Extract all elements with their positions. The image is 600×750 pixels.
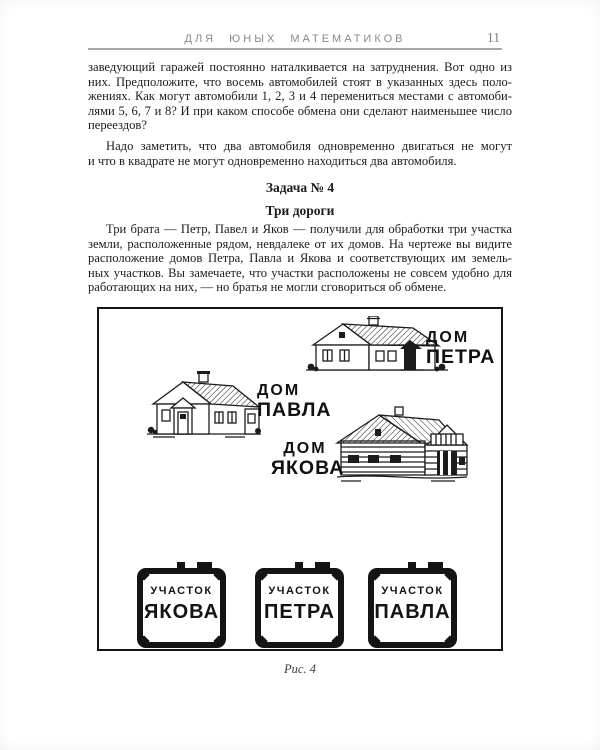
- house-petra-label-line1: ДОМ: [426, 328, 495, 347]
- house-yakova-label: ДОМ ЯКОВА: [271, 439, 339, 479]
- text-line: Надо заметить, что два автомобиля одновр…: [88, 139, 512, 154]
- house-yakova-illustration: [335, 405, 469, 483]
- running-header: ДЛЯ ЮНЫХ МАТЕМАТИКОВ 11: [88, 0, 502, 50]
- running-title: ДЛЯ ЮНЫХ МАТЕМАТИКОВ: [88, 33, 502, 45]
- plot-petra: УЧАСТОК ПЕТРА: [255, 568, 344, 648]
- plot-corner-mark: [213, 635, 224, 646]
- plot-gate-mark: [177, 562, 185, 569]
- plot-pavla: УЧАСТОК ПАВЛА: [368, 568, 457, 648]
- plot-corner-mark: [256, 569, 267, 580]
- house-pavla-label-line2: ПАВЛА: [257, 400, 331, 421]
- plot-yakova-label-line2: ЯКОВА: [143, 601, 220, 624]
- figure-caption: Рис. 4: [0, 662, 600, 677]
- problem-title: Три дороги: [88, 203, 512, 219]
- plot-corner-mark: [213, 569, 224, 580]
- plot-corner-mark: [138, 569, 149, 580]
- house-yakova-label-line2: ЯКОВА: [271, 458, 339, 479]
- plot-gate-mark: [197, 562, 212, 569]
- house-petra-label-line2: ПЕТРА: [426, 347, 495, 368]
- house-pavla-label-line1: ДОМ: [257, 381, 331, 400]
- plot-pavla-label-line1: УЧАСТОК: [374, 585, 451, 597]
- plot-corner-mark: [331, 635, 342, 646]
- plot-petra-label-line1: УЧАСТОК: [261, 585, 338, 597]
- plot-yakova-label-line1: УЧАСТОК: [143, 585, 220, 597]
- text-line: и что в квадрате не могут одновременно н…: [88, 154, 512, 169]
- plot-corner-mark: [369, 569, 380, 580]
- plot-gate-mark: [408, 562, 416, 569]
- text-line: лями 5, 6, 7 и 8? И при каком способе об…: [88, 104, 512, 119]
- plot-gate-mark: [315, 562, 330, 569]
- plot-corner-mark: [331, 569, 342, 580]
- page-number: 11: [487, 30, 500, 46]
- text-line: жениях. Как могут автомобили 1, 2, 3 и 4…: [88, 89, 512, 104]
- text-line: переездов?: [88, 118, 512, 133]
- house-yakova-label-line1: ДОМ: [271, 439, 339, 458]
- plot-pavla-label-line2: ПАВЛА: [374, 601, 451, 624]
- house-petra-label: ДОМ ПЕТРА: [426, 328, 495, 368]
- text-line: Три брата — Петр, Павел и Яков — получил…: [88, 222, 512, 237]
- plot-petra-label-line2: ПЕТРА: [261, 601, 338, 624]
- text-line: расположение домов Петра, Павла и Якова …: [88, 251, 512, 266]
- plot-gate-mark: [295, 562, 303, 569]
- plot-corner-mark: [444, 635, 455, 646]
- figure-box: ДОМ ПЕТРА ДОМ ПАВЛА: [97, 307, 503, 651]
- plot-corner-mark: [369, 635, 380, 646]
- text-line: земли, расположенные рядом, невдалеке от…: [88, 237, 512, 252]
- plot-corner-mark: [256, 635, 267, 646]
- paragraph-3: Три брата — Петр, Павел и Яков — получил…: [88, 222, 512, 295]
- house-pavla-illustration: [145, 371, 263, 439]
- book-page: ДЛЯ ЮНЫХ МАТЕМАТИКОВ 11 заведующий гараж…: [0, 0, 600, 750]
- paragraph-1: заведующий гаражей постоянно наталкивает…: [88, 60, 512, 133]
- plot-gate-mark: [428, 562, 443, 569]
- problem-heading: Задача № 4: [88, 180, 512, 196]
- text-line: них. Предположите, что восемь автомобиле…: [88, 75, 512, 90]
- text-line: заведующий гаражей постоянно наталкивает…: [88, 60, 512, 75]
- plot-corner-mark: [138, 635, 149, 646]
- text-line: ных участков. Вы замечаете, что участки …: [88, 266, 512, 281]
- house-pavla-label: ДОМ ПАВЛА: [257, 381, 331, 421]
- plot-corner-mark: [444, 569, 455, 580]
- paragraph-2: Надо заметить, что два автомобиля одновр…: [88, 139, 512, 168]
- plot-yakova: УЧАСТОК ЯКОВА: [137, 568, 226, 648]
- text-line: работающих на них, — но братья не могли …: [88, 280, 512, 295]
